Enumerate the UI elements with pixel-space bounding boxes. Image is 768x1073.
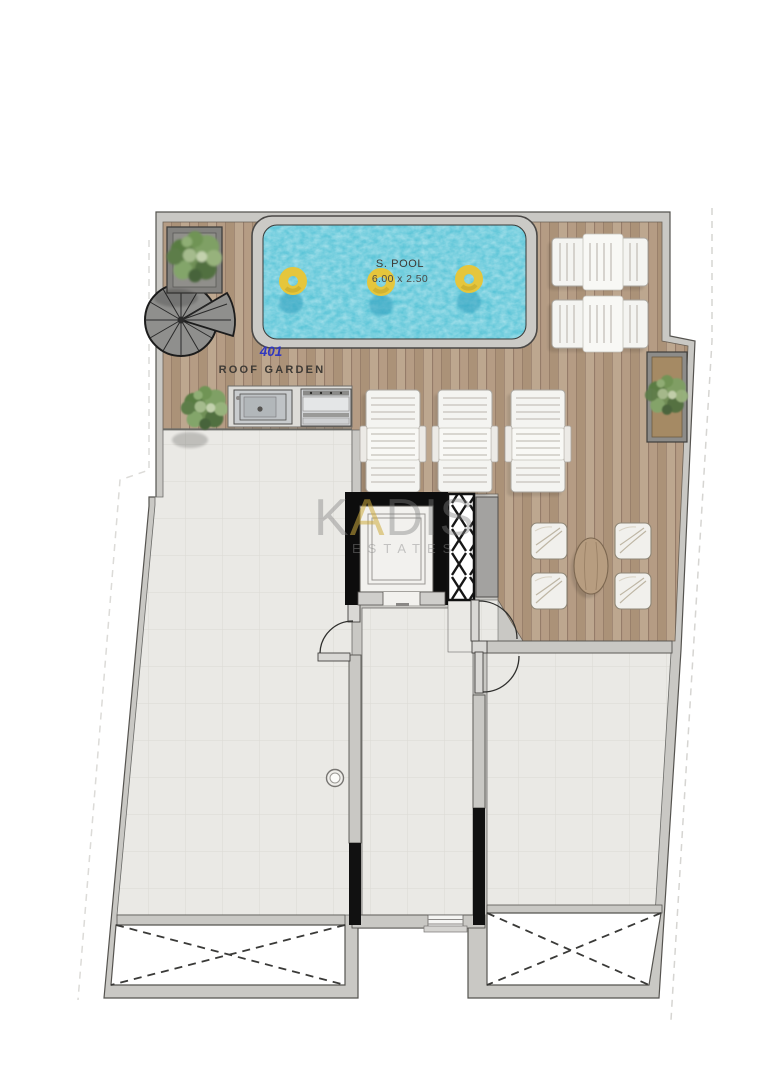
void-opening-right [487,905,662,985]
floor-plan-drawing [0,0,768,1073]
armchair [615,523,651,559]
room-floor-right [487,653,671,915]
floor-plan-page: S. POOL 6.00 x 2.50 401 ROOF GARDEN KADI… [0,0,768,1073]
elevator [345,492,448,606]
floor-drain [327,770,344,787]
sun-lounger [432,390,498,496]
coffee-table [574,538,608,594]
sun-lounger [360,390,426,496]
sink [234,390,292,424]
armchair [531,523,567,559]
armchair [531,573,567,609]
swimming-pool [252,216,537,348]
room-floor-middle [362,608,473,915]
pool-step-shadow [279,292,303,314]
grill [301,389,351,426]
planter-right [645,352,688,442]
sun-lounger [548,296,648,352]
sun-lounger [548,234,648,290]
outdoor-kitchen [228,386,352,427]
service-shaft [448,494,498,600]
armchair [615,573,651,609]
sun-lounger [505,390,571,496]
void-opening-left [111,915,345,985]
